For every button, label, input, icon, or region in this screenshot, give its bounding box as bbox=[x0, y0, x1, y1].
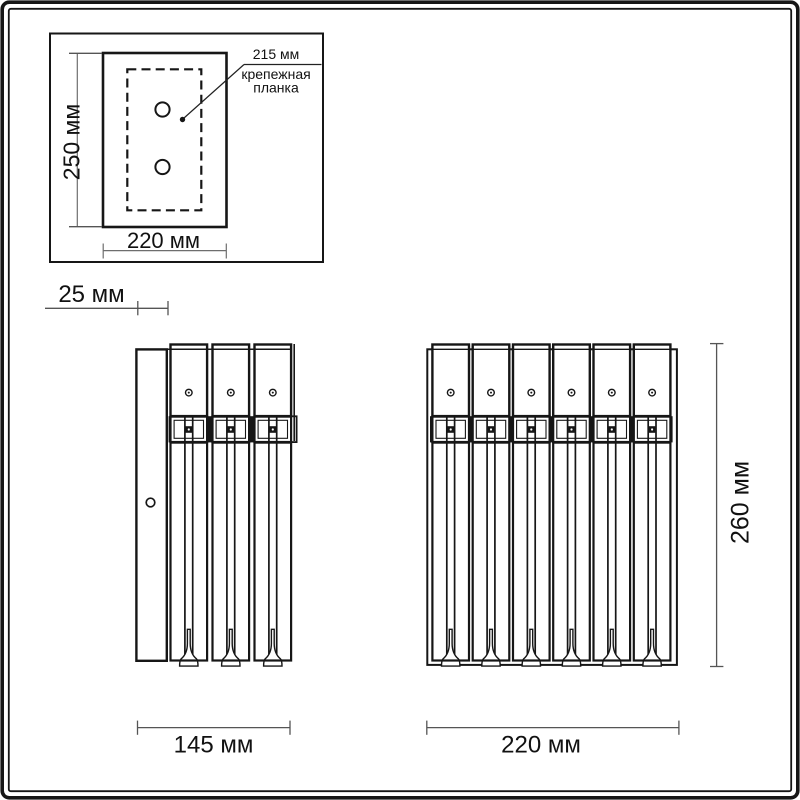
lamp-module bbox=[553, 345, 590, 667]
lamp-module bbox=[171, 345, 208, 667]
mount-bar-width-label: 215 мм bbox=[253, 46, 300, 62]
lamp-module bbox=[213, 345, 250, 667]
lamp-module bbox=[513, 345, 550, 667]
lamp-module bbox=[594, 345, 631, 667]
mounting-plate bbox=[103, 53, 227, 227]
side-depth-label: 25 мм bbox=[58, 281, 124, 308]
wall-plate bbox=[136, 349, 166, 660]
lamp-module bbox=[432, 345, 469, 667]
lamp-module bbox=[255, 345, 292, 667]
lamp-module bbox=[634, 345, 671, 667]
lamp-technical-drawing: 215 мм крепежная планка 250 мм 220 мм 25… bbox=[0, 0, 800, 800]
plate-width-label: 220 мм bbox=[127, 228, 200, 253]
side-width-label: 145 мм bbox=[174, 732, 254, 759]
lamp-module bbox=[473, 345, 510, 667]
front-width-label: 220 мм bbox=[501, 732, 581, 759]
front-height-label: 260 мм bbox=[727, 461, 755, 544]
mount-bar-caption-line2: планка bbox=[253, 79, 299, 95]
plate-height-label: 250 мм bbox=[59, 104, 85, 180]
